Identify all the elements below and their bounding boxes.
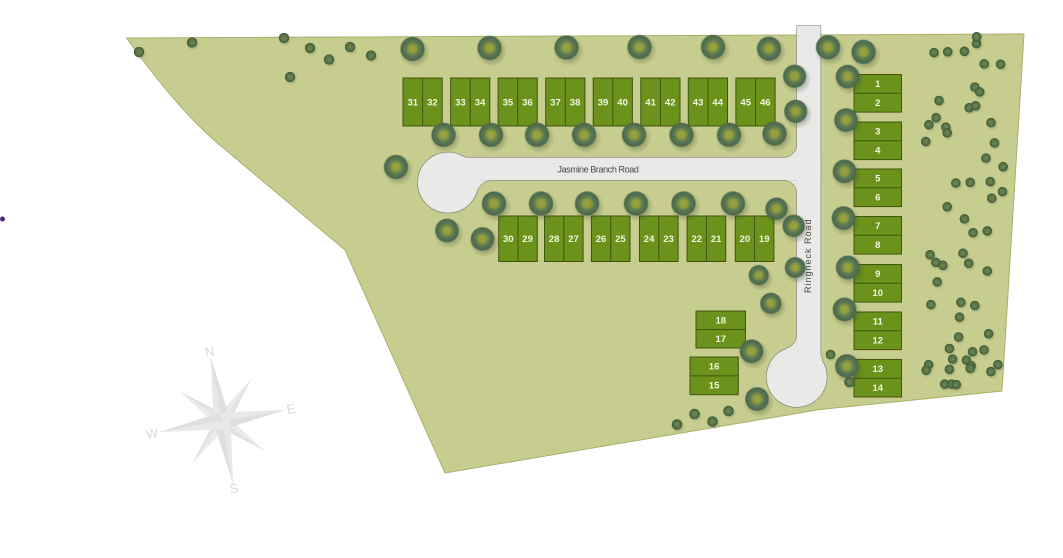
svg-text:2: 2 bbox=[875, 98, 880, 109]
svg-text:31: 31 bbox=[408, 97, 419, 108]
svg-text:20: 20 bbox=[740, 234, 751, 245]
svg-text:25: 25 bbox=[615, 234, 626, 245]
svg-text:43: 43 bbox=[693, 97, 704, 108]
svg-text:11: 11 bbox=[873, 317, 884, 328]
svg-text:1: 1 bbox=[875, 79, 881, 90]
svg-text:23: 23 bbox=[663, 234, 674, 245]
svg-text:42: 42 bbox=[665, 97, 676, 108]
svg-text:30: 30 bbox=[503, 234, 514, 245]
svg-text:21: 21 bbox=[711, 234, 722, 245]
svg-text:N: N bbox=[204, 343, 216, 359]
svg-text:33: 33 bbox=[455, 97, 466, 108]
svg-text:6: 6 bbox=[875, 193, 880, 204]
svg-text:40: 40 bbox=[617, 97, 628, 108]
svg-text:4: 4 bbox=[875, 146, 881, 157]
svg-text:24: 24 bbox=[644, 234, 655, 245]
svg-text:15: 15 bbox=[709, 381, 720, 392]
svg-text:10: 10 bbox=[873, 288, 884, 299]
svg-text:19: 19 bbox=[759, 234, 770, 245]
svg-text:12: 12 bbox=[873, 336, 884, 347]
svg-text:22: 22 bbox=[692, 234, 703, 245]
svg-text:35: 35 bbox=[503, 97, 514, 108]
svg-text:32: 32 bbox=[427, 97, 438, 108]
svg-text:3: 3 bbox=[875, 127, 880, 138]
svg-text:34: 34 bbox=[475, 97, 486, 108]
svg-text:18: 18 bbox=[716, 316, 727, 327]
svg-text:36: 36 bbox=[522, 97, 533, 108]
svg-text:17: 17 bbox=[716, 334, 727, 345]
svg-text:16: 16 bbox=[709, 362, 720, 373]
svg-text:13: 13 bbox=[873, 364, 884, 375]
svg-text:14: 14 bbox=[873, 383, 884, 394]
svg-text:8: 8 bbox=[875, 240, 880, 251]
svg-text:Jasmine Branch Road: Jasmine Branch Road bbox=[558, 165, 639, 175]
svg-text:46: 46 bbox=[760, 97, 771, 108]
svg-text:28: 28 bbox=[549, 234, 560, 245]
svg-text:39: 39 bbox=[598, 97, 609, 108]
svg-text:45: 45 bbox=[740, 97, 751, 108]
svg-text:38: 38 bbox=[570, 97, 581, 108]
svg-text:27: 27 bbox=[568, 234, 579, 245]
svg-text:37: 37 bbox=[550, 97, 561, 108]
svg-text:26: 26 bbox=[596, 234, 607, 245]
svg-text:9: 9 bbox=[875, 269, 880, 280]
svg-text:5: 5 bbox=[875, 174, 881, 185]
svg-text:W: W bbox=[145, 425, 160, 442]
svg-text:29: 29 bbox=[522, 234, 533, 245]
svg-text:7: 7 bbox=[875, 221, 880, 232]
svg-text:S: S bbox=[228, 480, 239, 496]
svg-text:44: 44 bbox=[712, 97, 723, 108]
svg-text:Ringneck Road: Ringneck Road bbox=[803, 218, 813, 293]
svg-text:E: E bbox=[285, 401, 296, 417]
svg-text:41: 41 bbox=[645, 97, 656, 108]
